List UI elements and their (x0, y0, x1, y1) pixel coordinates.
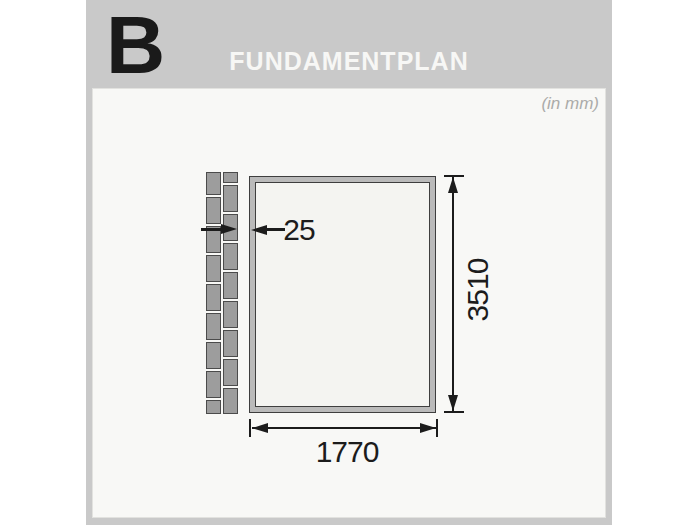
dim-25-label: 25 (282, 215, 316, 245)
dim-1770-arrow-right-icon (420, 423, 436, 433)
brick (223, 301, 238, 328)
wall-pointer-arrow-icon (221, 224, 237, 234)
document-card: B FUNDAMENTPLAN (in mm) 25 3510 (86, 0, 612, 525)
brick (223, 272, 238, 299)
brick (223, 243, 238, 270)
dim-1770-line (252, 427, 436, 429)
dim-3510-line (452, 177, 454, 411)
brick (206, 284, 221, 311)
brick (206, 342, 221, 369)
brick (223, 172, 238, 183)
brick (206, 172, 221, 195)
dim-1770-left-tick (249, 419, 251, 437)
brick (206, 313, 221, 340)
dim-3510-arrow-up-icon (448, 177, 458, 193)
brick (206, 197, 221, 224)
dim-3510-label: 3510 (463, 250, 493, 330)
drawing-panel: (in mm) 25 3510 (92, 88, 606, 518)
wall-section-right-column (223, 172, 238, 414)
dim-1770-label: 1770 (307, 437, 387, 467)
dim-25-arrow-icon (251, 225, 267, 235)
wall-section-left-column (206, 172, 221, 414)
dim-3510-bottom-tick (444, 411, 464, 413)
dim-3510-arrow-down-icon (448, 395, 458, 411)
foundation-frame (249, 176, 436, 413)
brick (206, 371, 221, 398)
brick (223, 359, 238, 386)
page-title: FUNDAMENTPLAN (86, 47, 612, 76)
brick (223, 388, 238, 414)
brick (223, 330, 238, 357)
brick (223, 185, 238, 212)
units-note: (in mm) (541, 94, 599, 114)
page: B FUNDAMENTPLAN (in mm) 25 3510 (0, 0, 700, 525)
dim-1770-arrow-left-icon (252, 423, 268, 433)
wall-pointer-line (201, 228, 223, 231)
dim-1770-right-tick (436, 419, 438, 437)
brick (206, 255, 221, 282)
brick (206, 400, 221, 414)
